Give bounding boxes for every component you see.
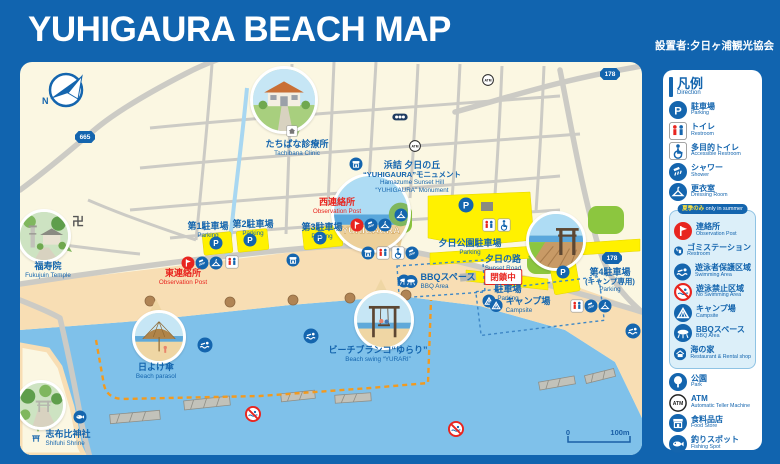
beach-parasol-label: 日よけ傘Beach parasol	[136, 362, 176, 380]
dressing-icon	[210, 257, 223, 270]
summer-badge-en: only in summer	[706, 206, 743, 212]
map-restroom-icon	[377, 247, 390, 260]
torii-icon	[29, 432, 42, 445]
shower-icon	[669, 163, 687, 181]
manji-temple-mark-label: 卍	[72, 213, 84, 230]
map-overlays: 閉鎖中 0 100m 665178178ATMATMPPPPPたちばな診療所Ta…	[20, 62, 642, 455]
legend-item-label: BBQスペースBBQ Area	[696, 326, 745, 341]
scale-start-label: 0	[566, 428, 570, 437]
map-traffic-icon	[392, 109, 409, 126]
legend-header: 凡例 Direction	[669, 77, 756, 97]
legend-item-atm: ATMATMAutomatic Teller Machine	[669, 394, 756, 412]
legend-item-no-swimming: 遊泳禁止区域No Swimming Area	[674, 283, 751, 301]
map-panel: N	[20, 62, 642, 455]
shower-icon	[365, 219, 378, 232]
svg-text:P: P	[247, 236, 253, 245]
legend-item-label: 公園Park	[691, 375, 707, 390]
map-dressing-icon	[599, 300, 612, 313]
legend-item-observation: 連絡所Observation Post	[674, 222, 751, 240]
observation-icon	[351, 219, 364, 232]
map-shower-icon	[406, 247, 419, 260]
legend-items-general: P駐車場ParkingトイレRestroom多目的トイレAccessible R…	[669, 101, 756, 201]
legend-panel: 凡例 Direction P駐車場ParkingトイレRestroom多目的トイ…	[663, 70, 762, 450]
map-parking-icon: P	[459, 198, 474, 213]
beach-map-poster: YUHIGAURA BEACH MAP 設置者:夕日ヶ浦観光協会	[0, 0, 780, 464]
atm-icon: ATM	[669, 394, 687, 412]
parking-1-label: 第1駐車場Parking	[187, 221, 228, 239]
map-food-store-icon	[287, 254, 300, 267]
map-food-store-icon	[350, 158, 363, 171]
legend-item-label: ATMAutomatic Teller Machine	[691, 395, 750, 410]
map-dressing-icon	[210, 257, 223, 270]
legend-item-label: 更衣室Dressing Room	[691, 185, 728, 200]
no-swimming-icon	[245, 406, 261, 422]
bbq-icon	[674, 324, 692, 342]
swimming-icon	[626, 324, 641, 339]
traffic-icon	[392, 109, 409, 126]
map-restroom-icon	[483, 219, 496, 232]
restroom-icon	[377, 247, 390, 260]
map-fishing-icon	[74, 411, 87, 424]
parking-4-label: 第4駐車場(キャンプ専用)Parking	[585, 267, 635, 294]
yuhigaura-monument-label: 浜詰 夕日の丘“YUHIGAURA”モニュメントHamazume Sunset …	[363, 160, 461, 194]
atm-icon: ATM	[409, 140, 421, 152]
bbq-area-label: BBQスペースBBQ Area	[405, 272, 476, 290]
map-no-swimming-icon	[448, 421, 464, 437]
map-shower-icon	[585, 300, 598, 313]
tachibana-clinic-label: たちばな診療所Tachibana Clinic	[265, 139, 328, 157]
parking-icon: P	[557, 266, 570, 279]
map-food-store-icon	[362, 247, 375, 260]
label-text: 志布比神社Shifuhi Shrine	[45, 429, 90, 447]
dressing-icon	[379, 219, 392, 232]
dressing-icon	[669, 183, 687, 201]
map-restroom-icon	[571, 300, 584, 313]
legend-item-park: 公園Park	[669, 373, 756, 391]
parking-2-label: 第2駐車場Parking	[232, 219, 273, 237]
legend-item-label: 連絡所Observation Post	[696, 223, 737, 238]
food-store-icon	[362, 247, 375, 260]
west-observation-post-label: 西連絡所Observation Post	[313, 197, 361, 215]
sunset-road-label: 夕日の路Sunset Road	[485, 254, 521, 272]
legend-title: 凡例	[677, 77, 703, 90]
restroom-icon	[226, 256, 239, 269]
legend-item-trash: ゴミステーションRestroom	[674, 242, 751, 260]
accessible-icon	[498, 219, 511, 232]
legend-item-camp: キャンプ場Campsite	[674, 304, 751, 322]
route-badge-665: 665	[75, 131, 95, 143]
route-badge-178: 178	[602, 252, 622, 264]
legend-item-bbq: BBQスペースBBQ Area	[674, 324, 751, 342]
svg-text:ATM: ATM	[411, 144, 418, 148]
legend-item-label: シャワーShower	[691, 164, 723, 179]
legend-item-restroom: トイレRestroom	[669, 122, 756, 140]
legend-item-dressing: 更衣室Dressing Room	[669, 183, 756, 201]
legend-item-swimming: 遊泳者保護区域Swimming Area	[674, 263, 751, 281]
svg-text:P: P	[213, 239, 219, 248]
legend-item-accessible: 多目的トイレAccessible Restroom	[669, 142, 756, 160]
food-store-icon	[350, 158, 363, 171]
restroom-icon	[571, 300, 584, 313]
svg-text:ATM: ATM	[484, 78, 491, 82]
route-badge-178: 178	[600, 68, 620, 80]
legend-items-facilities: 公園ParkATMATMAutomatic Teller Machine食料品店…	[669, 373, 756, 453]
map-accessible-icon	[392, 247, 405, 260]
accessible-icon	[669, 142, 687, 160]
svg-text:P: P	[463, 201, 469, 211]
map-observation-icon	[351, 219, 364, 232]
bbq-icon	[405, 275, 418, 288]
page-title: YUHIGAURA BEACH MAP	[28, 10, 451, 50]
map-swimming-icon	[198, 338, 213, 353]
legend-item-label: 食料品店Food Store	[691, 416, 723, 431]
label-text: キャンプ場Campsite	[506, 296, 551, 314]
trash-icon	[674, 242, 683, 260]
legend-items-summer: 連絡所Observation PostゴミステーションRestroom遊泳者保護…	[674, 222, 751, 363]
map-accessible-icon	[498, 219, 511, 232]
east-observation-post-label: 東連絡所Observation Post	[159, 268, 207, 286]
summer-badge-jp: 夏季のみ	[682, 206, 704, 212]
legend-accent-bar	[669, 77, 673, 97]
map-dressing-icon	[379, 219, 392, 232]
camp-icon	[674, 304, 692, 322]
map-parking-icon: P	[557, 266, 570, 279]
restroom-icon	[483, 219, 496, 232]
map-restroom-icon	[226, 256, 239, 269]
beach-house-icon	[674, 345, 686, 363]
map-swimming-icon	[304, 329, 319, 344]
legend-item-label: トイレRestroom	[691, 123, 715, 138]
legend-item-label: キャンプ場Campsite	[696, 305, 736, 320]
legend-item-fishing: 釣りスポットFishing Spot	[669, 435, 756, 453]
fishing-icon	[74, 411, 87, 424]
scale-end-label: 100m	[610, 428, 629, 437]
legend-item-label: 海の家Restaurant & Rental shop	[690, 346, 751, 361]
parking-icon: P	[459, 198, 474, 213]
legend-item-parking: P駐車場Parking	[669, 101, 756, 119]
map-no-swimming-icon	[245, 406, 261, 422]
observation-icon	[674, 222, 692, 240]
restroom-icon	[669, 122, 687, 140]
legend-item-label: ゴミステーションRestroom	[687, 244, 751, 259]
no-swimming-icon	[448, 421, 464, 437]
legend-item-shower: シャワーShower	[669, 163, 756, 181]
fukujuin-temple-label: 福寿院Fukujuin Temple	[25, 261, 71, 279]
legend-item-food-store: 食料品店Food Store	[669, 414, 756, 432]
park-icon	[669, 373, 687, 391]
building-icon	[287, 126, 298, 137]
credit-text: 設置者:夕日ヶ浦観光協会	[655, 38, 774, 53]
dressing-icon	[395, 209, 408, 222]
shower-icon	[585, 300, 598, 313]
shifuhi-shrine-label: 志布比神社Shifuhi Shrine	[29, 429, 90, 447]
legend-item-label: 駐車場Parking	[691, 103, 715, 118]
atm-icon: ATM	[482, 74, 494, 86]
map-atm-icon: ATM	[409, 140, 421, 152]
map-building-icon	[287, 126, 298, 137]
camp-icon	[490, 299, 503, 312]
legend-item-label: 釣りスポットFishing Spot	[691, 436, 739, 451]
svg-text:P: P	[674, 105, 682, 117]
swimming-icon	[304, 329, 319, 344]
swimming-icon	[198, 338, 213, 353]
food-store-icon	[669, 414, 687, 432]
no-swimming-icon	[674, 283, 692, 301]
fishing-icon	[669, 435, 687, 453]
food-store-icon	[287, 254, 300, 267]
beach-swing-label: ビーチブランコ“ゆらり”Beach swing “YURARI”	[328, 345, 427, 363]
legend-subtitle: Direction	[677, 90, 703, 96]
shower-icon	[406, 247, 419, 260]
svg-text:ATM: ATM	[673, 401, 684, 407]
swimming-icon	[674, 263, 691, 281]
legend-item-label: 遊泳者保護区域Swimming Area	[695, 264, 751, 279]
campsite-area-label: キャンプ場Campsite	[490, 296, 551, 314]
parking-icon: P	[669, 101, 687, 119]
map-swimming-icon	[626, 324, 641, 339]
parking-3-label: 第3駐車場Parking	[301, 222, 342, 240]
legend-summer-box: 夏季のみ only in summer 連絡所Observation Postゴ…	[669, 210, 756, 369]
legend-item-label: 遊泳禁止区域No Swimming Area	[696, 285, 744, 300]
dressing-icon	[599, 300, 612, 313]
map-atm-icon: ATM	[482, 74, 494, 86]
legend-item-label: 多目的トイレAccessible Restroom	[691, 144, 741, 159]
map-dressing-icon	[395, 209, 408, 222]
svg-text:P: P	[560, 268, 566, 277]
label-text: BBQスペースBBQ Area	[421, 272, 476, 290]
summer-only-badge: 夏季のみ only in summer	[677, 204, 748, 214]
accessible-icon	[392, 247, 405, 260]
map-shower-icon	[365, 219, 378, 232]
legend-item-beach-house: 海の家Restaurant & Rental shop	[674, 345, 751, 363]
